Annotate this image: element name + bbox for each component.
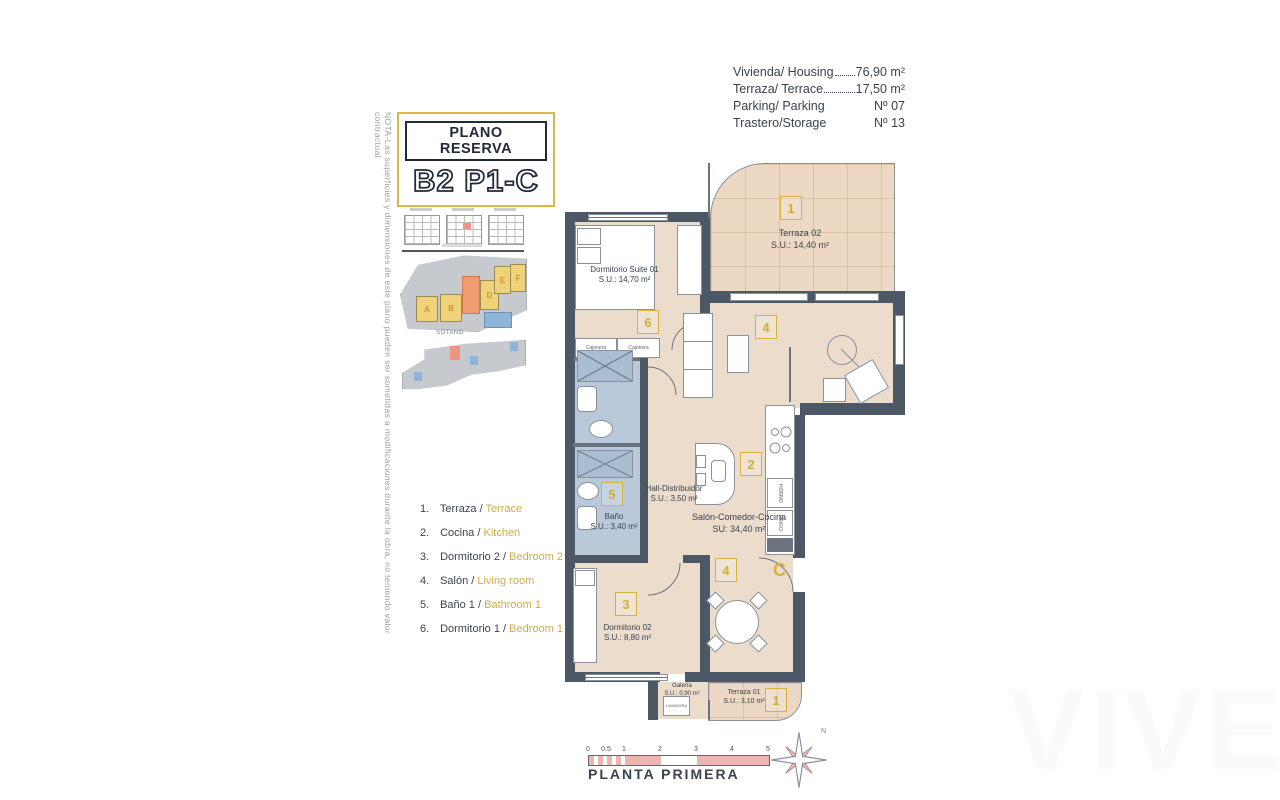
info-label: Vivienda/ Housing [733,65,834,79]
marker-dining: 4 [715,558,737,582]
scale-tick: 2 [658,746,662,753]
elevation-grid [446,215,482,245]
block-label: B [448,304,454,313]
terrace-02-label: Terraza 02 S.U.: 14,40 m² [740,228,860,251]
basement-core [470,356,478,365]
block-caption-bar [452,208,474,211]
info-value: Nº 07 [874,99,905,113]
block-caption-bar [494,208,516,211]
info-label: Terraza/ Terrace [733,82,823,96]
washer-label: LAVADORA [666,704,687,709]
pool-area [484,312,512,328]
entrance-letter: C [773,560,786,581]
basement-outline [402,340,526,400]
legend-number: 3. [420,551,437,563]
legend-en: Kitchen [483,527,520,539]
toilet [577,482,599,500]
info-value: 76,90 m² [856,65,905,79]
elevation-grid [488,215,524,245]
elevation-grid [404,215,440,245]
legend-number: 2. [420,527,437,539]
legend-number: 4. [420,575,437,587]
block-c-highlighted [462,276,480,314]
legend-en: Bathroom 1 [484,599,541,611]
legend-item: 2. Cocina / Kitchen [420,527,563,539]
floor-lamp [827,335,857,365]
hob-icon [765,422,795,462]
basement-minimap: SÓTANO [402,330,524,402]
compass-rose: N [770,730,828,790]
sofa [683,313,713,398]
legend-es: Cocina / [440,527,480,539]
info-value: 17,50 m² [856,82,905,96]
galeria-label: Galería S.U.: 0,90 m² [657,683,707,699]
oven-label: HORNO [777,484,783,503]
title-box: PLANO RESERVA B2 P1-C [397,112,555,207]
table-row: Vivienda/ Housing 76,90 m² [733,62,905,79]
block-label: D [487,291,493,300]
legend-en: Terrace [486,503,523,515]
highlighted-unit-cell [463,223,471,229]
block-label: A [424,305,430,314]
watermark: VIVE [1008,664,1280,796]
toilet [589,420,613,438]
table-row: Terraza/ Terrace 17,50 m² [733,79,905,96]
scale-tick: 3 [694,746,698,753]
disclaimer-note: NOTA-Las superficies y dimensiones de es… [377,112,393,682]
legend-es: Salón / [440,575,474,587]
legend-en: Bedroom 1 [509,623,563,635]
legend-number: 5. [420,599,437,611]
terrace-01-label: Terraza 01 S.U.: 3,10 m² [713,688,775,706]
plano-reserva-page: { "nota": "NOTA-Las superficies y dimens… [0,0,1280,800]
sotano-label: SÓTANO [436,330,464,336]
unit-code: B2 P1-C [405,163,547,199]
legend-item: 6. Dormitorio 1 / Bedroom 1 [420,623,563,635]
bedroom-02-label: Dormitorio 02 S.U.: 8,80 m² [585,623,670,644]
table-row: Trastero/Storage Nº 13 [733,113,905,130]
marker-terrace-02: 1 [780,196,802,220]
legend-item: 3. Dormitorio 2 / Bedroom 2 [420,551,563,563]
suite-pillow [577,247,601,264]
island-sink [711,460,726,482]
coffee-table [727,335,749,373]
compass-star-icon [770,730,828,790]
scale-bar: 0 0.5 1 2 3 4 5 [588,744,770,766]
legend-es: Baño 1 / [440,599,481,611]
stool [696,455,706,468]
scale-tick: 4 [730,746,734,753]
legend-es: Dormitorio 1 / [440,623,506,635]
sink [577,386,597,412]
block-label: E [500,276,505,285]
legend-item: 5. Baño 1 / Bathroom 1 [420,599,563,611]
building-elevation-minimap [402,206,524,252]
oven-cabinet: HORNO [767,478,793,508]
shower-tray [577,450,633,478]
basement-core [414,372,422,381]
bedroom02-pillow [575,570,595,586]
block-f: F [510,264,526,292]
block-a: A [416,296,438,322]
marker-bedroom-1: 6 [637,310,659,334]
scale-tick: 0 [586,746,590,753]
living-label: Salón-Comedor-Cocina SU: 34,40 m² [683,512,795,535]
scale-tick: 0.5 [601,746,611,753]
info-label: Trastero/Storage [733,116,826,130]
scale-tick: 1 [622,746,626,753]
block-b: B [440,294,462,322]
marker-living: 4 [755,315,777,339]
legend-en: Living room [477,575,534,587]
suite-label: Dormitorio Suite 01 S.U.: 14,70 m² [577,265,672,286]
legend-item: 4. Salón / Living room [420,575,563,587]
legend-es: Terraza / [440,503,483,515]
room-legend: 1. Terraza / Terrace 2. Cocina / Kitchen… [420,503,563,647]
hall-label: Hall-Distribuidor S.U.: 3,50 m² [641,484,707,505]
side-table [823,378,846,402]
block-label: F [516,274,521,283]
plan-subtitle: PLANO RESERVA [405,121,547,161]
basement-core [510,342,518,351]
marker-bathroom-1: 5 [601,482,623,506]
info-value: Nº 13 [874,116,905,130]
floor-title: PLANTA PRIMERA [588,766,740,782]
north-label: N [821,728,826,735]
dotted-leader [824,92,855,93]
floor-plan: Cajonera Cajonera HORNO FRIGO LAVADORA [565,160,910,725]
scale-segments [588,755,770,766]
suite-pillow [577,228,601,245]
tv-unit [789,347,791,402]
bathroom-label: Baño S.U.: 3,40 m² [585,512,643,533]
legend-number: 6. [420,623,437,635]
kitchen-tall-unit [767,538,793,552]
suite-wardrobe [677,225,702,295]
block-caption-bar [410,208,432,211]
legend-es: Dormitorio 2 / [440,551,506,563]
site-plan-minimap: A B D E F [400,254,527,332]
surface-info-table: Vivienda/ Housing 76,90 m² Terraza/ Terr… [733,62,905,130]
table-row: Parking/ Parking Nº 07 [733,96,905,113]
marker-kitchen: 2 [740,452,762,476]
info-label: Parking/ Parking [733,99,825,113]
highlighted-storage [450,346,460,360]
shower-tray [577,350,633,382]
legend-number: 1. [420,503,437,515]
dining-table [715,600,759,644]
marker-bedroom-2: 3 [615,592,637,616]
legend-en: Bedroom 2 [509,551,563,563]
washing-machine: LAVADORA [663,696,690,716]
elevation-baseline-label [442,244,482,247]
legend-item: 1. Terraza / Terrace [420,503,563,515]
dotted-leader [835,75,855,76]
block-e: E [494,266,511,294]
